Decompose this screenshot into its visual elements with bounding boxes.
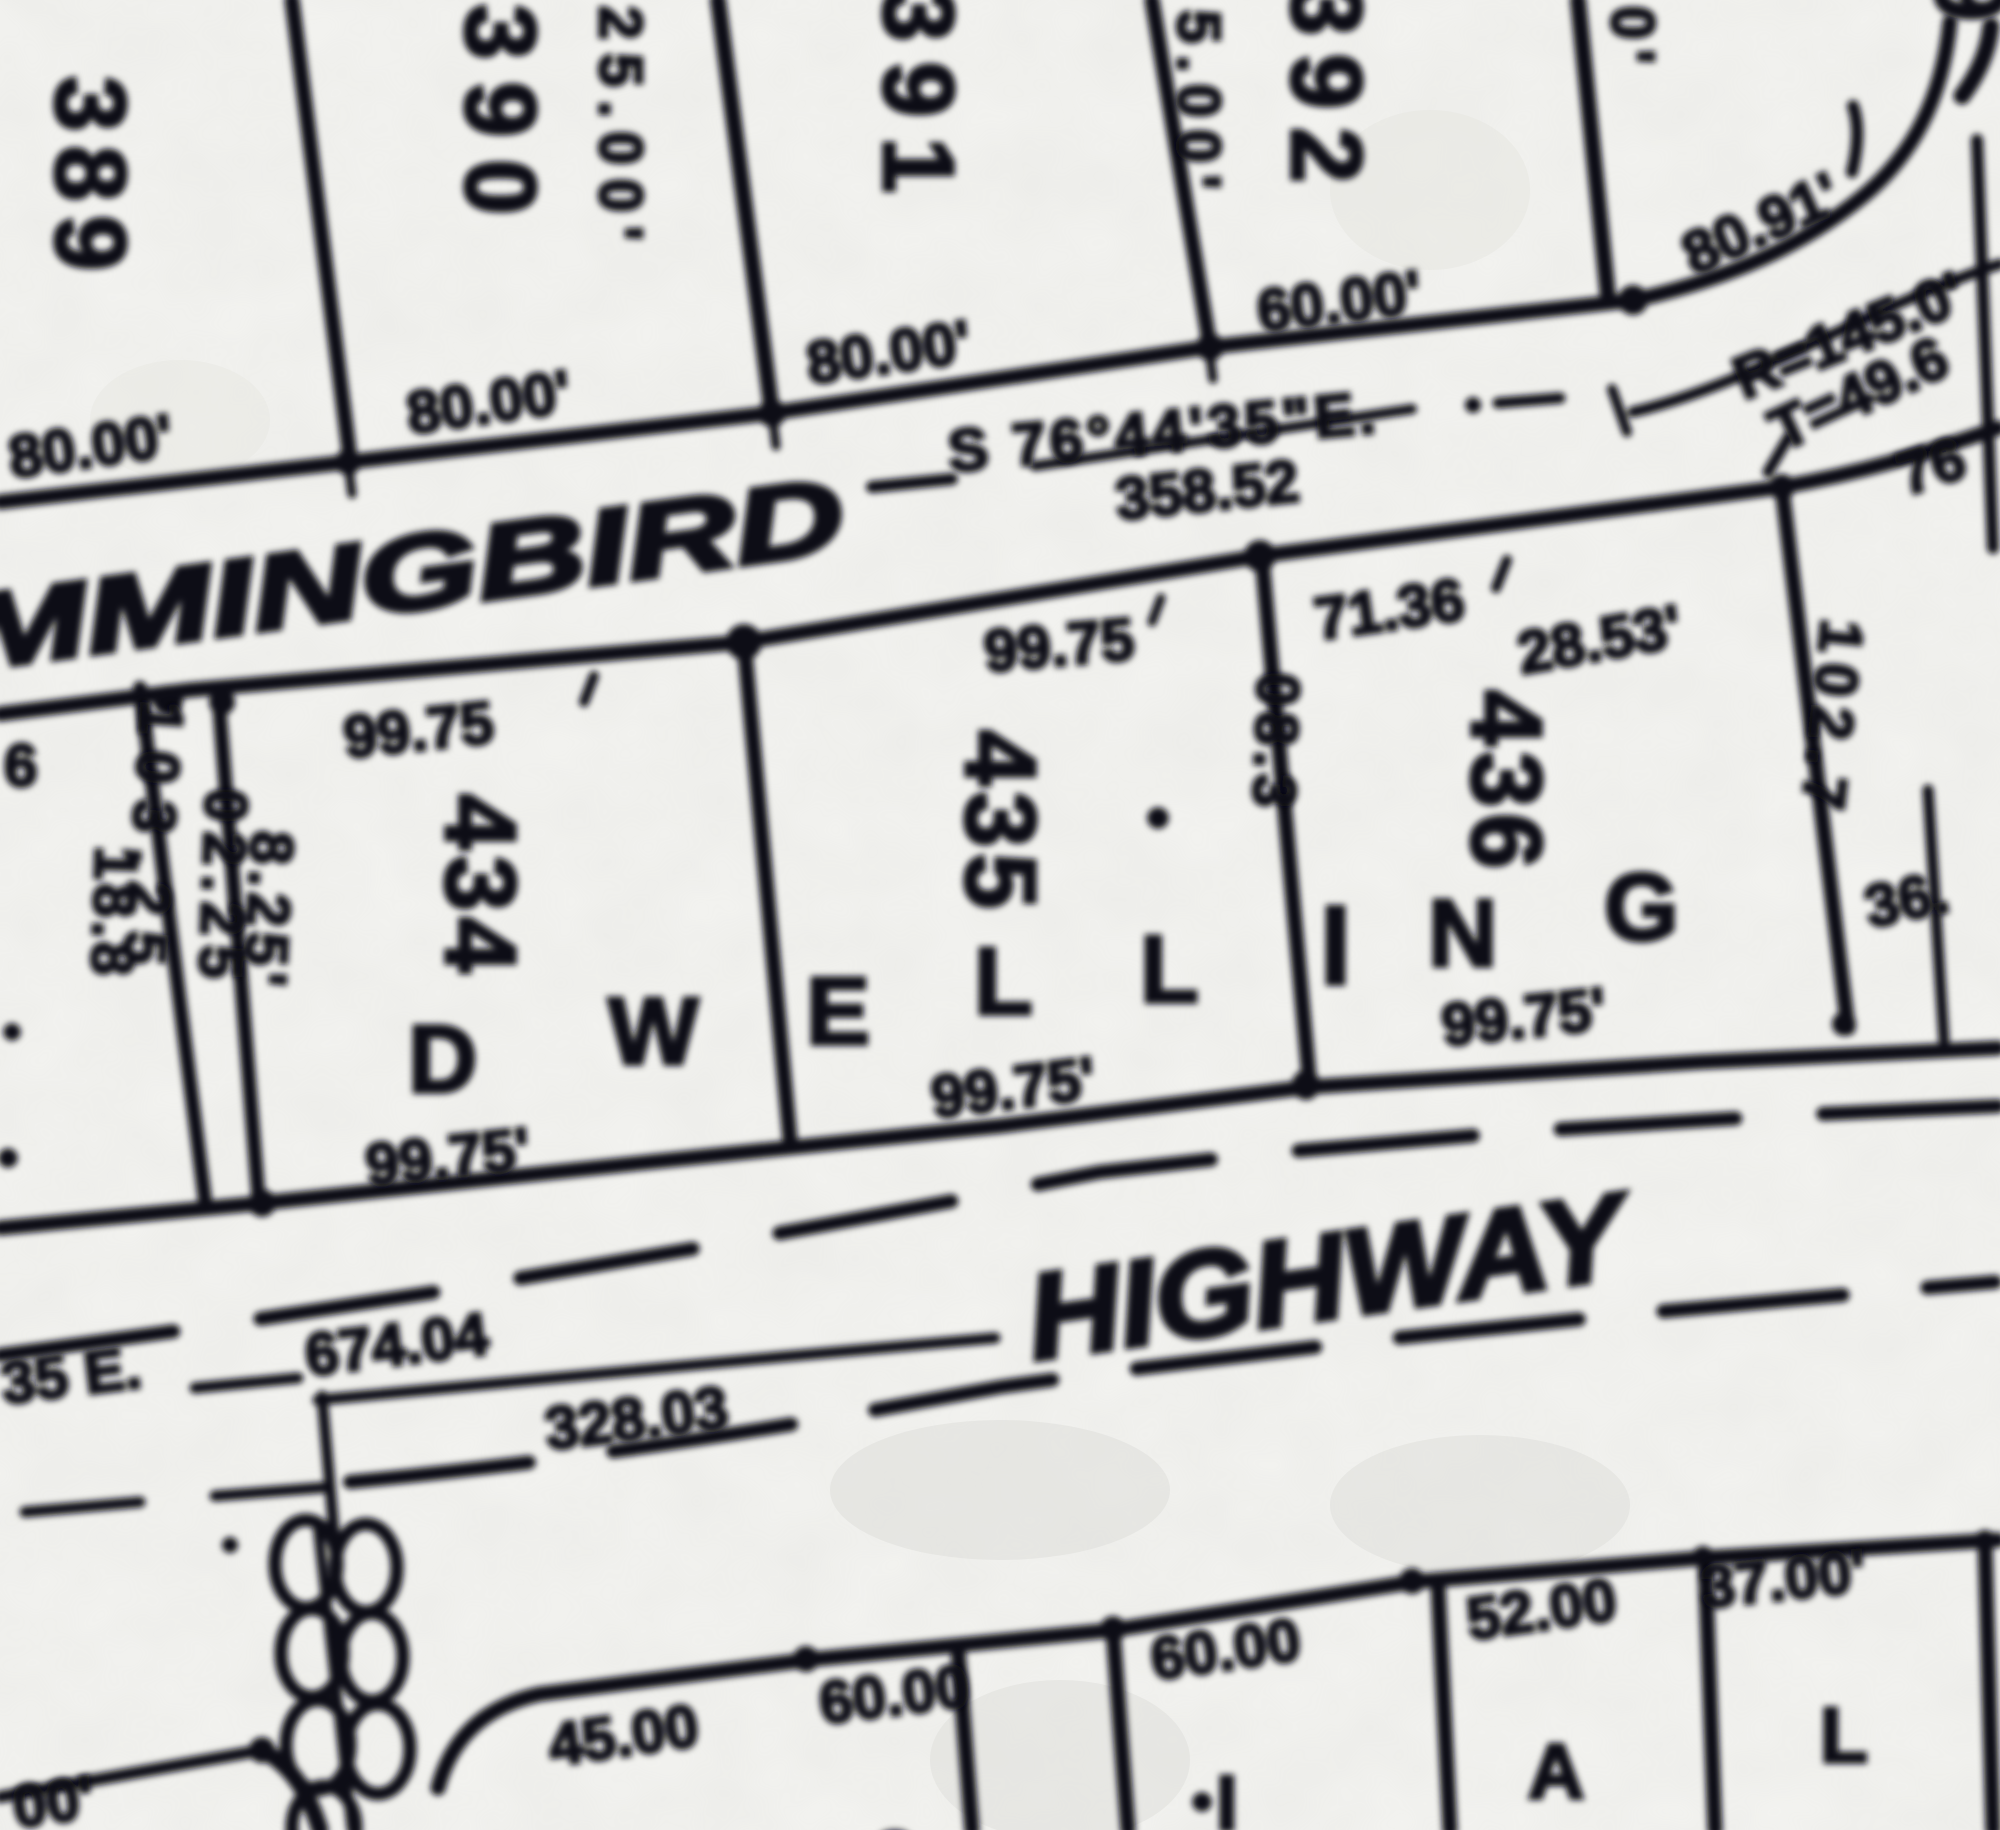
svg-text:391: 391 — [862, 0, 974, 213]
svg-text:6: 6 — [4, 732, 37, 799]
svg-text:390: 390 — [444, 4, 556, 237]
svg-text:9: 9 — [1914, 0, 2000, 40]
svg-text:389: 389 — [34, 76, 146, 285]
svg-text:L: L — [1140, 916, 1199, 1023]
svg-text:392: 392 — [1270, 0, 1382, 201]
svg-text:08.3: 08.3 — [1240, 672, 1312, 815]
svg-text:A: A — [1528, 1727, 1584, 1815]
svg-text:C.: C. — [872, 1820, 932, 1830]
svg-text:5.00': 5.00' — [1165, 10, 1232, 201]
svg-text:8.25': 8.25' — [231, 829, 306, 993]
svg-text:99.75: 99.75 — [981, 605, 1136, 685]
svg-text:W: W — [608, 978, 699, 1085]
svg-text:L: L — [974, 928, 1033, 1035]
svg-text:0': 0' — [1599, 6, 1666, 74]
svg-text:I: I — [1216, 1759, 1238, 1830]
svg-text:00': 00' — [8, 1763, 98, 1830]
svg-text:436: 436 — [1450, 690, 1562, 875]
svg-text:435: 435 — [944, 730, 1056, 915]
svg-text:N: N — [1428, 880, 1497, 987]
svg-text:E: E — [806, 958, 870, 1065]
svg-text:434: 434 — [424, 794, 536, 979]
svg-text:G: G — [1604, 854, 1679, 961]
svg-text:L: L — [1820, 1691, 1868, 1779]
svg-text:D: D — [408, 1006, 477, 1113]
svg-text:I: I — [1320, 883, 1351, 1008]
svg-text:25.00': 25.00' — [587, 6, 654, 254]
